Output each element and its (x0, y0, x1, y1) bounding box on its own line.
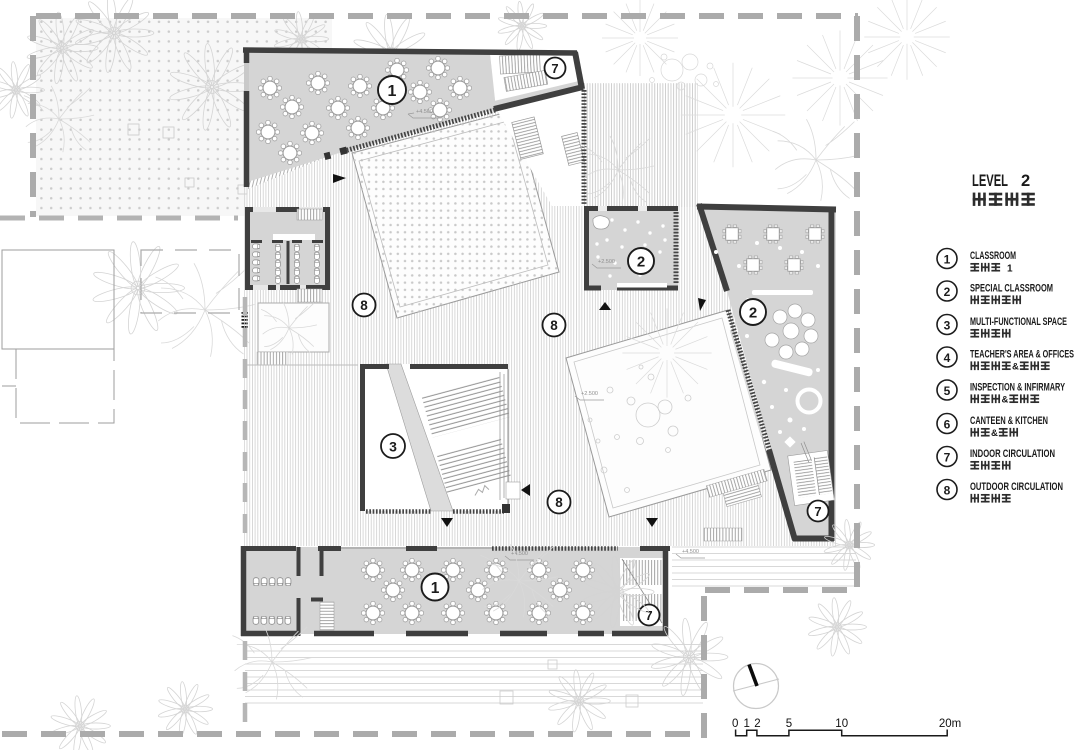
svg-text:2: 2 (749, 305, 757, 322)
svg-text:8: 8 (550, 318, 558, 333)
svg-text:7: 7 (645, 608, 652, 623)
svg-text:INDOOR CIRCULATION: INDOOR CIRCULATION (970, 448, 1055, 460)
svg-text:7: 7 (944, 451, 951, 465)
svg-text:1: 1 (431, 580, 440, 597)
svg-text:&: & (1002, 395, 1009, 406)
svg-text:&: & (1012, 362, 1019, 373)
svg-text:2: 2 (1021, 172, 1030, 190)
svg-text:7: 7 (814, 504, 821, 519)
svg-text:2: 2 (637, 254, 645, 271)
svg-text:+4.500: +4.500 (682, 549, 699, 555)
svg-text:+4.500: +4.500 (416, 109, 433, 115)
svg-text:1: 1 (944, 253, 951, 267)
svg-text:7: 7 (551, 61, 558, 76)
svg-text:INSPECTION & INFIRMARY: INSPECTION & INFIRMARY (970, 382, 1066, 394)
svg-text:&: & (991, 428, 998, 439)
svg-text:8: 8 (555, 495, 563, 510)
svg-text:10: 10 (835, 718, 848, 730)
svg-text:+2.500: +2.500 (598, 259, 615, 265)
svg-text:5: 5 (786, 718, 792, 730)
svg-text:1: 1 (388, 83, 397, 100)
svg-text:3: 3 (944, 319, 951, 333)
svg-text:2: 2 (944, 285, 951, 299)
svg-text:CANTEEN & KITCHEN: CANTEEN & KITCHEN (970, 415, 1048, 427)
svg-text:8: 8 (360, 298, 368, 313)
svg-text:20m: 20m (939, 718, 961, 730)
svg-text:+2.500: +2.500 (581, 391, 598, 397)
svg-text:SPECIAL CLASSROOM: SPECIAL CLASSROOM (970, 283, 1053, 295)
svg-text:4: 4 (944, 351, 951, 365)
svg-text:1: 1 (743, 718, 749, 730)
svg-text:0: 0 (732, 718, 738, 730)
svg-text:8: 8 (944, 484, 951, 498)
svg-text:CLASSROOM: CLASSROOM (970, 250, 1016, 262)
svg-text:6: 6 (944, 418, 951, 432)
svg-text:1: 1 (1007, 264, 1013, 275)
svg-text:TEACHER'S AREA & OFFICES: TEACHER'S AREA & OFFICES (970, 349, 1074, 361)
svg-text:5: 5 (944, 384, 951, 398)
svg-text:OUTDOOR CIRCULATION: OUTDOOR CIRCULATION (970, 481, 1063, 493)
svg-text:2: 2 (754, 718, 760, 730)
svg-text:MULTI-FUNCTIONAL SPACE: MULTI-FUNCTIONAL SPACE (970, 316, 1067, 328)
svg-text:LEVEL: LEVEL (972, 172, 1008, 190)
svg-text:3: 3 (389, 439, 397, 455)
